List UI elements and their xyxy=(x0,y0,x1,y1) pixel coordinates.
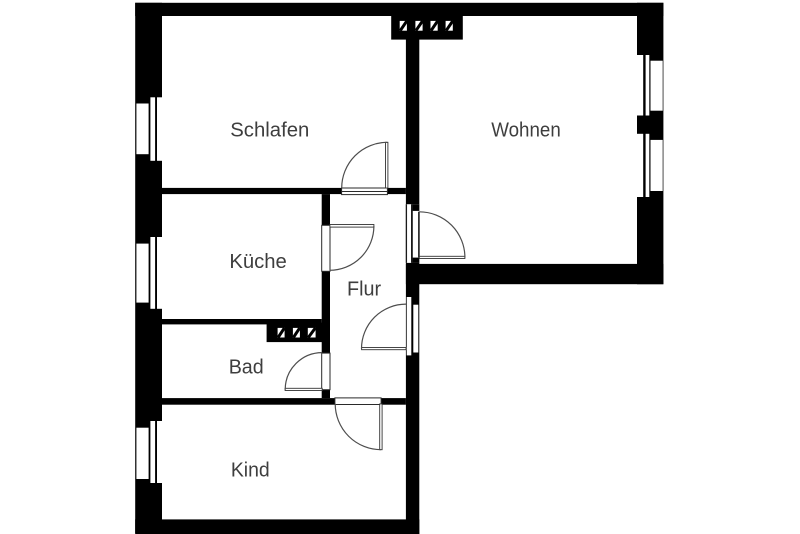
svg-text:Flur: Flur xyxy=(347,279,381,301)
svg-text:Küche: Küche xyxy=(229,251,287,273)
svg-text:Bad: Bad xyxy=(229,357,264,379)
svg-text:Schlafen: Schlafen xyxy=(230,119,309,141)
svg-text:Kind: Kind xyxy=(231,459,270,481)
svg-text:Wohnen: Wohnen xyxy=(491,119,561,141)
